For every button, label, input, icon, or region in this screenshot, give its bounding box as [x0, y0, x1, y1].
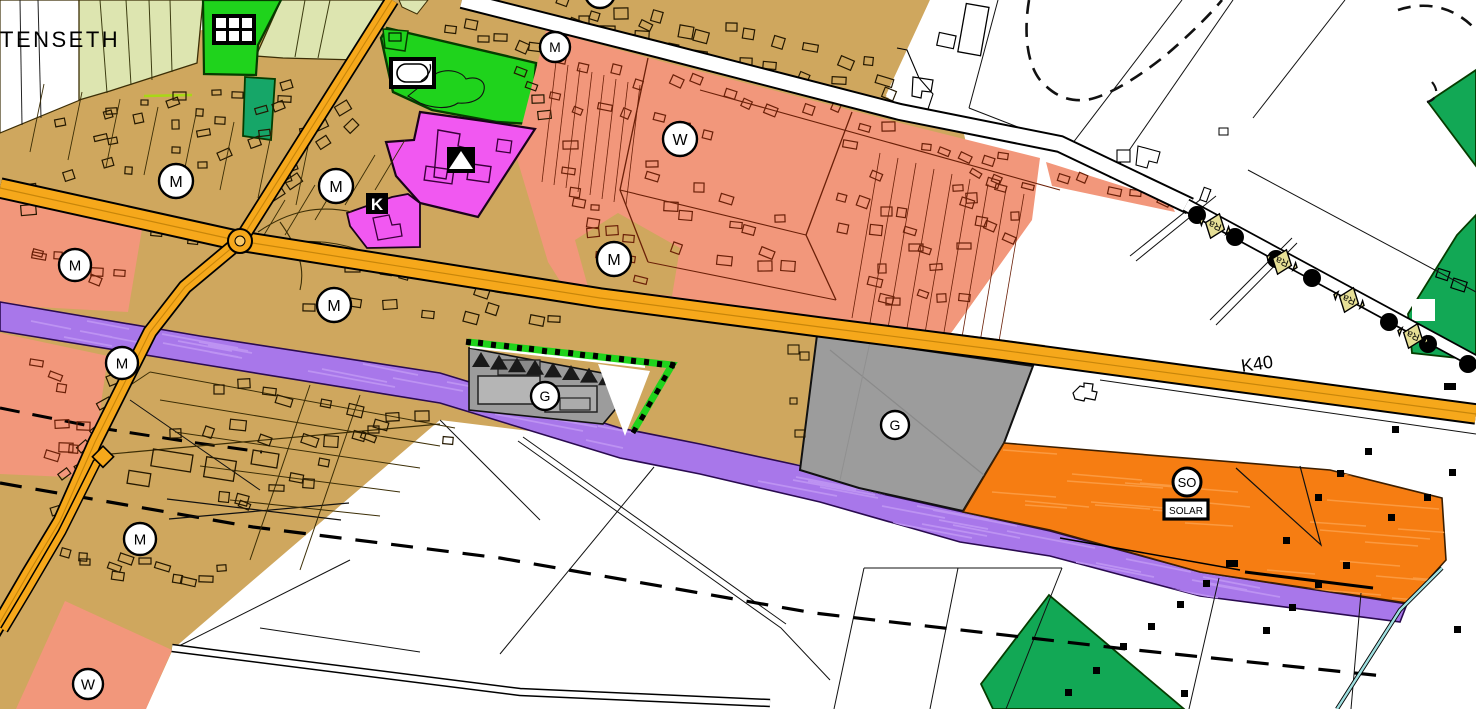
svg-text:M: M — [169, 174, 182, 191]
svg-text:G: G — [540, 388, 551, 404]
svg-text:M: M — [69, 257, 82, 274]
svg-text:M: M — [116, 355, 129, 372]
svg-text:M: M — [607, 252, 620, 269]
svg-text:SOLAR: SOLAR — [1169, 506, 1203, 517]
svg-text:M: M — [329, 179, 342, 196]
svg-text:M: M — [549, 39, 561, 55]
svg-text:K: K — [371, 195, 384, 214]
svg-text:W: W — [81, 676, 96, 693]
svg-text:G: G — [890, 417, 901, 433]
svg-text:TENSETH: TENSETH — [0, 27, 120, 52]
svg-text:M: M — [134, 531, 147, 548]
svg-text:M: M — [327, 298, 340, 315]
svg-text:W: W — [672, 132, 688, 149]
svg-text:SO: SO — [1178, 475, 1197, 490]
svg-text:M: M — [594, 0, 606, 1]
